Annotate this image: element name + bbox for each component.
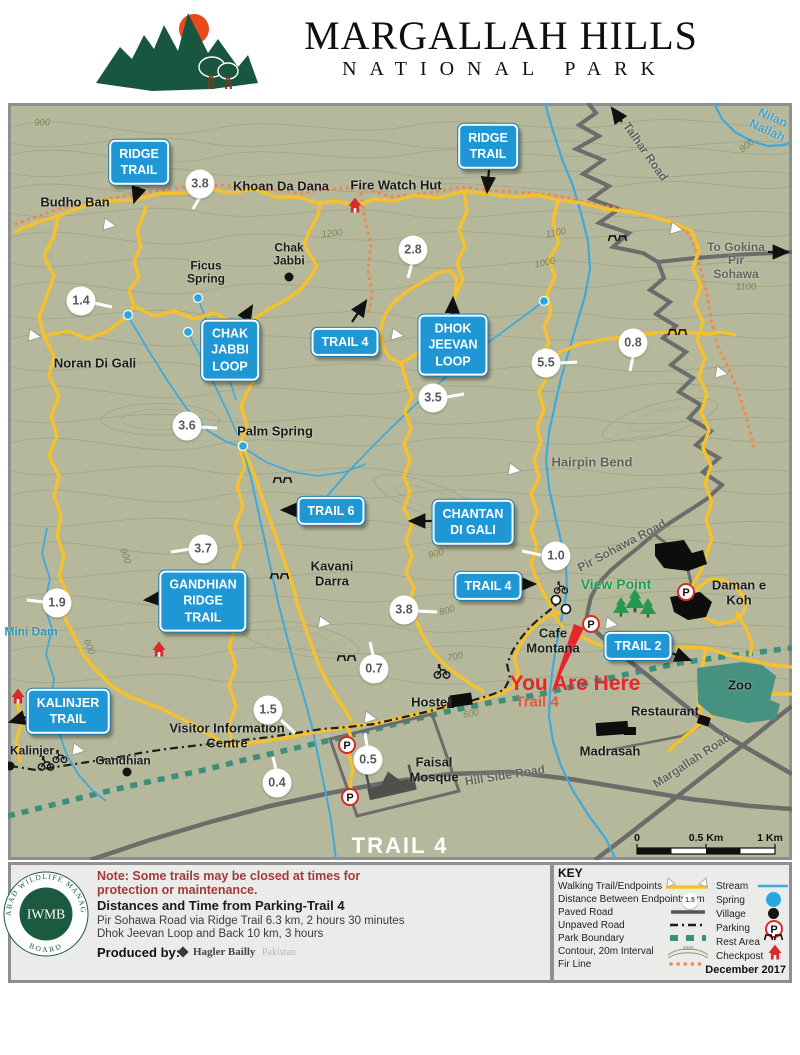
distance-badge: 1.5 (254, 696, 283, 725)
key-contour-sample: 1000 (682, 946, 693, 952)
place-label-view-point: View Point (581, 577, 652, 593)
sign-trail-6: TRAIL 6 (298, 497, 365, 525)
key-title: KEY (558, 866, 583, 880)
producer-name: Hagler Bailly (193, 946, 255, 958)
seal-abbr: IWMB (27, 907, 65, 922)
place-label-zoo: Zoo (728, 679, 752, 694)
trail-4-banner: TRAIL 4 (352, 833, 449, 859)
scale-zero-label: 0 (634, 832, 640, 844)
footer-distances-title: Distances and Time from Parking-Trail 4 (97, 898, 345, 913)
place-label-cafe-montana: Cafe Montana (526, 626, 579, 655)
contour-label: 900 (34, 118, 50, 129)
sign-ridge-trail-west: RIDGE TRAIL (109, 140, 169, 185)
distance-badge: 1.0 (542, 542, 571, 571)
park-subtitle: NATIONAL PARK (300, 58, 710, 81)
place-label-chak-jabbi: Chak Jabbi (273, 242, 304, 269)
footer-note: Note: Some trails may be closed at times… (97, 869, 360, 898)
cyclist-icons (38, 581, 567, 770)
place-label-restaurant: Restaurant (631, 705, 699, 720)
distance-badge: 3.8 (186, 170, 215, 199)
sign-dhok-jeevan-loop: DHOK JEEVAN LOOP (418, 315, 487, 376)
sign-chak-jabbi-loop: CHAK JABBI LOOP (201, 320, 259, 381)
key-stream-symbol (756, 880, 790, 892)
place-label-fire-watch-hut: Fire Watch Hut (350, 179, 441, 194)
sign-kalinjer-trail: KALINJER TRAIL (27, 689, 110, 734)
place-label-madrasah: Madrasah (580, 745, 641, 760)
sign-chantan-di-gali: CHANTAN DI GALI (433, 500, 514, 545)
scale-one-label: 1 Km (757, 832, 783, 844)
place-label-to-gokina: To Gokina Pir Sohawa (704, 241, 768, 281)
producer-suffix: Pakistan (262, 947, 296, 958)
distance-badge: 0.8 (619, 329, 648, 358)
sign-trail-2: TRAIL 2 (605, 632, 672, 660)
you-are-here-trail-label: Trail 4 (515, 694, 558, 711)
sign-trail-4-top: TRAIL 4 (312, 328, 379, 356)
distance-badge: 3.6 (173, 412, 202, 441)
place-label-daman-e-koh: Daman e Koh (709, 578, 770, 607)
key-village-symbol (768, 908, 779, 919)
place-label-faisal-mosque: Faisal Mosque (409, 755, 458, 784)
distance-badge: 1.4 (67, 287, 96, 316)
distance-badge: 3.8 (390, 596, 419, 625)
distance-badge: 1.9 (43, 589, 72, 618)
sign-trail-4-mid: TRAIL 4 (455, 572, 522, 600)
place-label-palm-spring: Palm Spring (237, 425, 313, 440)
footer-distance-line-1: Pir Sohawa Road via Ridge Trail 6.3 km, … (97, 915, 404, 927)
map-canvas: P (8, 103, 792, 860)
key-spring-symbol (766, 892, 781, 907)
place-label-kavani-darra: Kavani Darra (311, 559, 354, 588)
you-are-here-label: You Are Here (510, 672, 641, 696)
distance-badge: 0.7 (360, 655, 389, 684)
key-checkpost-symbol (766, 944, 784, 962)
key-rest-area-symbol (762, 931, 786, 945)
checkpost-icon (349, 198, 362, 213)
key-walking-trail-symbol (662, 876, 712, 892)
distance-badge: 0.5 (354, 746, 383, 775)
distance-badge: 2.8 (399, 236, 428, 265)
scale-half-label: 0.5 Km (689, 832, 723, 844)
sign-ridge-trail-east: RIDGE TRAIL (458, 124, 518, 169)
place-label-khoan-da-dana: Khoan Da Dana (233, 180, 329, 195)
distance-badge: 0.4 (263, 769, 292, 798)
place-label-hairpin-bend: Hairpin Bend (552, 456, 633, 471)
distance-badge: 3.5 (419, 384, 448, 413)
park-logo (92, 5, 262, 95)
footer-distance-line-2: Dhok Jeevan Loop and Back 10 km, 3 hours (97, 928, 323, 940)
key-unpaved-road-symbol (668, 921, 708, 929)
rest-area-icon (274, 478, 292, 483)
iwmb-seal: ISLAMABAD WILDLIFE MANAGEMENT BOARD IWMB (3, 871, 89, 957)
key-date: December 2017 (660, 964, 786, 976)
key-park-boundary-symbol (668, 933, 708, 943)
place-label-kalinjer: Kalinjer (10, 744, 54, 757)
scale-bar (637, 844, 775, 854)
place-label-hostel: Hostel (411, 696, 451, 711)
distance-badge: 3.7 (189, 535, 218, 564)
place-label-gandhian: Gandhian (95, 754, 150, 767)
footer-produced-by: Produced by: (97, 945, 180, 960)
page: { "header": { "title": "MARGALLAH HILLS"… (0, 0, 800, 1055)
key-paved-road-symbol (668, 908, 708, 916)
park-title: MARGALLAH HILLS (296, 12, 706, 59)
checkpost-icon (153, 642, 166, 657)
place-label-budho-ban: Budho Ban (40, 196, 109, 211)
key-contour-symbol: 1000 (666, 943, 710, 959)
contour-label: 1200 (321, 228, 343, 241)
contour-label: 1100 (736, 282, 756, 293)
key-distance-symbol: 1.5 (682, 893, 698, 909)
sign-gandhian-ridge-trail: GANDHIAN RIDGE TRAIL (159, 571, 246, 632)
place-label-ficus-spring: Ficus Spring (187, 260, 225, 287)
viewpoint-trees-icon (613, 589, 656, 618)
place-label-mini-dam: Mini Dam (4, 625, 57, 638)
distance-badge: 5.5 (532, 349, 561, 378)
place-label-noran-di-gali: Noran Di Gali (54, 357, 136, 372)
mountains-icon (96, 13, 258, 91)
checkpost-icon (12, 689, 25, 704)
place-label-visitor-information-centre: Visitor Information Centre (169, 721, 284, 750)
